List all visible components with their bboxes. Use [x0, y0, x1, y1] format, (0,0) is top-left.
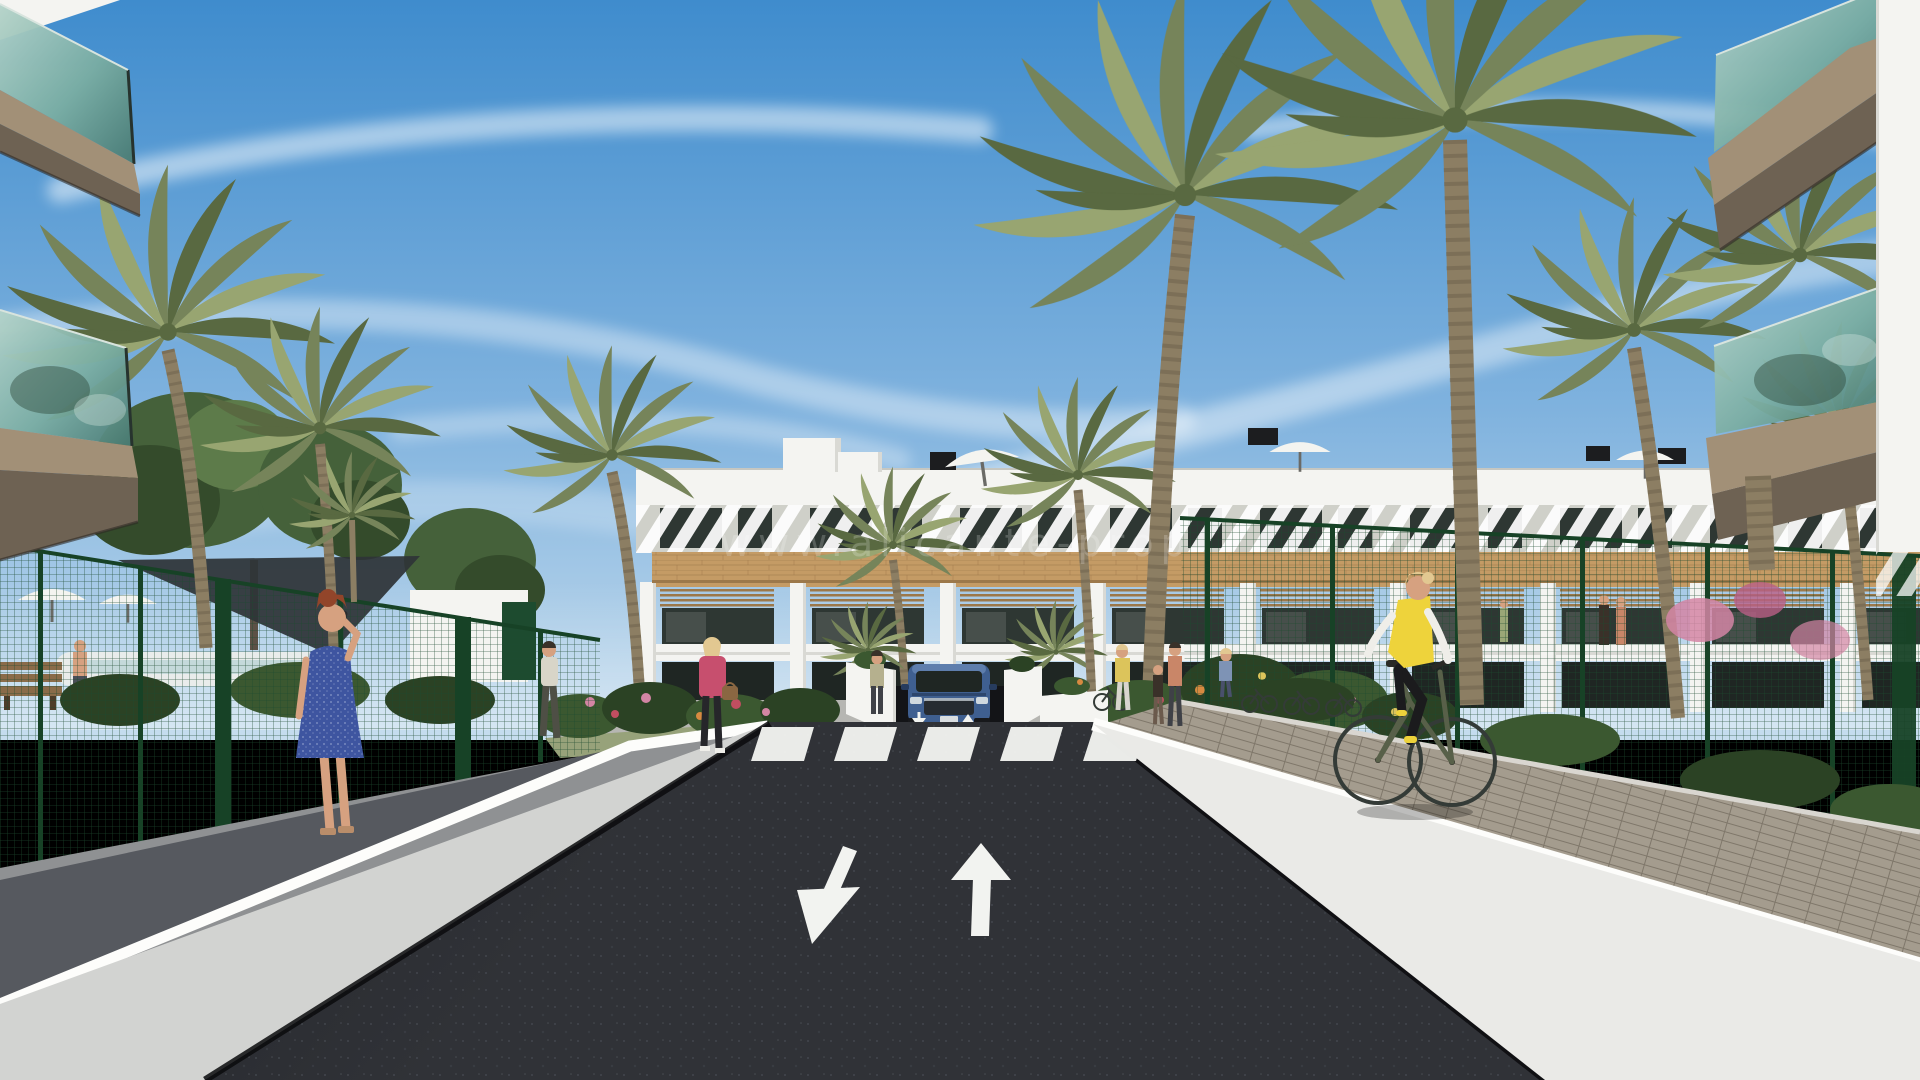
corner-palm-trunk	[1758, 476, 1762, 570]
shoe	[1404, 736, 1417, 743]
watermark: www.alicante-prop	[720, 521, 1192, 565]
corner-column	[1876, 0, 1920, 552]
climbing-flowers	[1666, 598, 1734, 642]
chimney	[1248, 428, 1278, 445]
render-image: www.alicante-prop	[0, 0, 1920, 1080]
balcony-left-lower	[0, 310, 138, 560]
chimney	[930, 452, 956, 470]
chimney	[1586, 446, 1610, 461]
scene: www.alicante-prop	[0, 0, 1920, 1080]
